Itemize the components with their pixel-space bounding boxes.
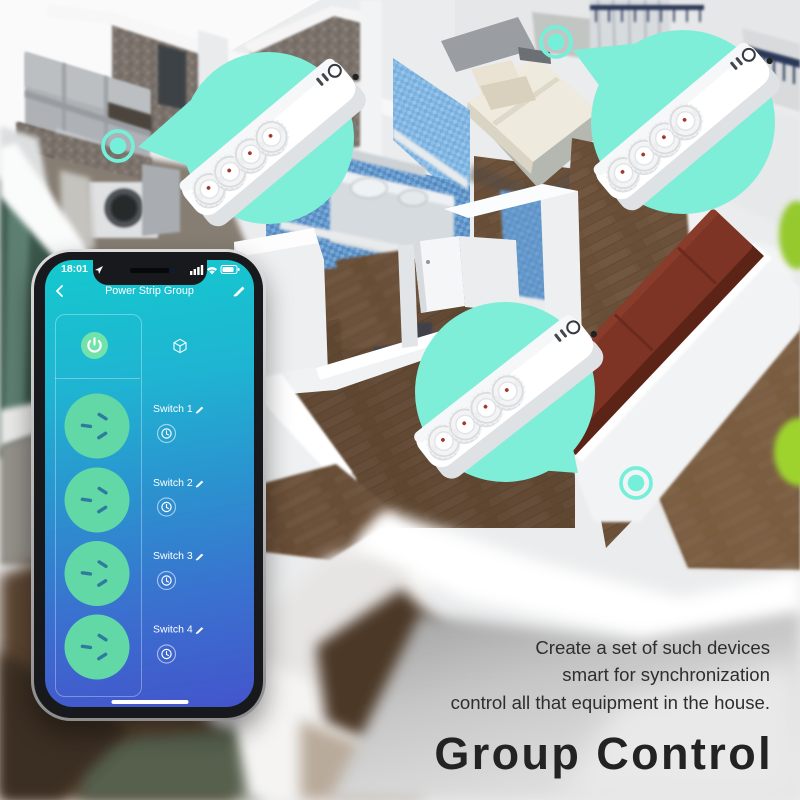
svg-text:Switch 2: Switch 2 [153, 477, 193, 489]
svg-text:Switch 4: Switch 4 [153, 624, 193, 636]
svg-text:Switch 3: Switch 3 [153, 550, 193, 562]
svg-text:Switch 1: Switch 1 [153, 403, 193, 415]
